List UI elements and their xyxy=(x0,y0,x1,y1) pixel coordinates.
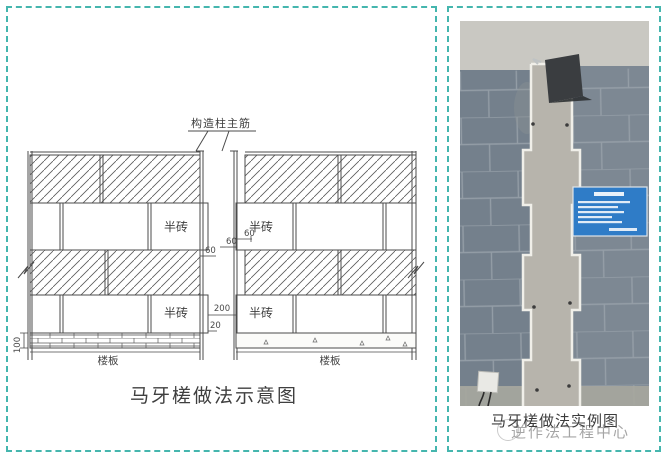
schematic-svg: 构造柱主筋 半砖 半砖 半砖 半砖 xyxy=(8,8,435,450)
photo-svg xyxy=(449,8,659,450)
pour-funnel xyxy=(545,54,583,103)
dim-60-c: 60 xyxy=(205,246,216,256)
rebar-callout-label: 构造柱主筋 xyxy=(191,116,251,130)
info-sign xyxy=(573,187,647,236)
hatched-course-1 xyxy=(30,152,416,203)
half-brick-label: 半砖 xyxy=(164,305,188,320)
schematic-panel: 构造柱主筋 半砖 半砖 半砖 半砖 xyxy=(6,6,437,452)
floor-slab-left-label: 楼板 xyxy=(98,354,119,367)
photo-caption: 马牙槎做法实例图 xyxy=(491,410,619,431)
floor-slab-right-label: 楼板 xyxy=(320,354,341,367)
site-photo xyxy=(454,21,655,408)
dim-60-b: 60 xyxy=(226,237,237,247)
half-brick-label: 半砖 xyxy=(249,305,273,320)
dim-20: 20 xyxy=(210,321,221,331)
dim-60-a: 60 xyxy=(244,229,255,239)
hatched-course-2 xyxy=(18,250,424,295)
dim-200: 200 xyxy=(214,304,230,314)
floor-slab-right: 楼板 xyxy=(236,333,416,367)
half-brick-course-2: 半砖 半砖 xyxy=(30,295,416,333)
sign-title-bar xyxy=(594,192,624,196)
half-brick-course-1: 半砖 半砖 xyxy=(30,203,416,250)
rebar-callout-leader xyxy=(188,131,256,151)
photo-panel: 马牙槎做法实例图 逆作法工程中心 xyxy=(447,6,661,452)
rebar-callout: 构造柱主筋 xyxy=(188,116,256,151)
floor-slab-left: 楼板 xyxy=(30,333,200,367)
diagram-title: 马牙槎做法示意图 xyxy=(130,385,298,407)
dim-100: 100 xyxy=(13,337,23,353)
half-brick-label: 半砖 xyxy=(164,219,188,234)
